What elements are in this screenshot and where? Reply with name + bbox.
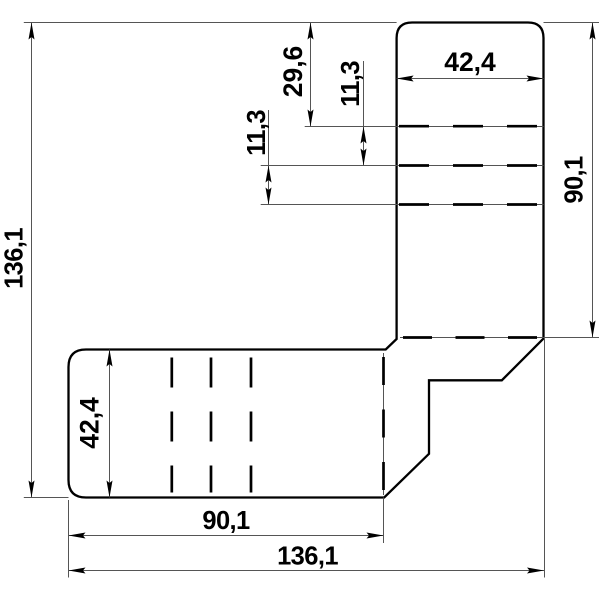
svg-text:42,4: 42,4 bbox=[75, 397, 105, 449]
svg-text:42,4: 42,4 bbox=[444, 47, 496, 77]
svg-text:136,1: 136,1 bbox=[277, 542, 338, 570]
svg-text:29,6: 29,6 bbox=[278, 46, 308, 98]
svg-text:11,3: 11,3 bbox=[337, 61, 365, 107]
svg-text:90,1: 90,1 bbox=[561, 156, 589, 204]
svg-text:90,1: 90,1 bbox=[202, 507, 250, 535]
svg-text:11,3: 11,3 bbox=[243, 110, 271, 156]
svg-text:136,1: 136,1 bbox=[1, 228, 29, 289]
